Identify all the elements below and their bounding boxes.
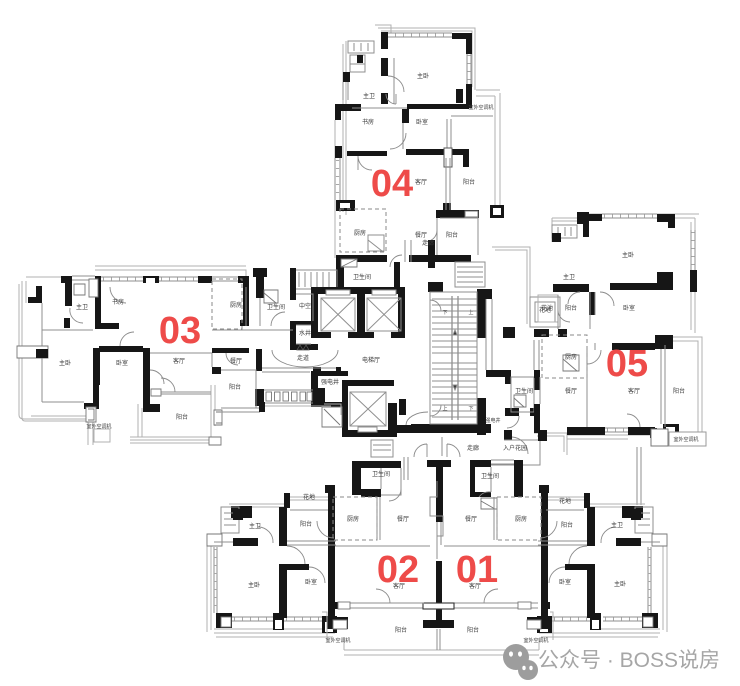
svg-text:卧室: 卧室 <box>559 578 571 586</box>
svg-text:卧室: 卧室 <box>416 118 428 126</box>
svg-text:公众号 · BOSS说房: 公众号 · BOSS说房 <box>538 649 720 672</box>
svg-text:客厅: 客厅 <box>415 178 427 186</box>
svg-text:阳台: 阳台 <box>463 178 475 186</box>
svg-text:阳台: 阳台 <box>561 521 573 529</box>
svg-text:阳台: 阳台 <box>395 626 407 634</box>
svg-text:餐厅: 餐厅 <box>230 357 242 365</box>
svg-text:卫生间: 卫生间 <box>481 472 499 480</box>
svg-text:阳台: 阳台 <box>467 626 479 634</box>
svg-text:走廊: 走廊 <box>467 444 479 452</box>
svg-text:03: 03 <box>159 310 201 352</box>
svg-text:阳台: 阳台 <box>673 387 685 395</box>
svg-text:客厅: 客厅 <box>628 387 640 395</box>
svg-text:卫生间: 卫生间 <box>515 387 533 395</box>
svg-text:下: 下 <box>442 310 447 316</box>
svg-text:厨房: 厨房 <box>230 301 242 309</box>
svg-text:强电井: 强电井 <box>321 378 339 386</box>
svg-text:阳台: 阳台 <box>300 520 312 528</box>
svg-text:走廊: 走廊 <box>422 239 434 247</box>
svg-text:书房: 书房 <box>362 118 374 126</box>
svg-text:花池: 花池 <box>541 304 553 312</box>
svg-text:厨房: 厨房 <box>354 229 366 237</box>
svg-text:中空: 中空 <box>299 302 311 310</box>
svg-text:卫生间: 卫生间 <box>353 273 371 281</box>
svg-text:室外空调机: 室外空调机 <box>673 436 698 443</box>
svg-text:电梯厅: 电梯厅 <box>362 356 380 364</box>
svg-text:书房: 书房 <box>112 298 124 306</box>
svg-text:卧室: 卧室 <box>623 304 635 312</box>
svg-text:05: 05 <box>606 343 648 385</box>
svg-text:餐厅: 餐厅 <box>397 515 409 523</box>
svg-text:卫生间: 卫生间 <box>372 470 390 478</box>
svg-text:卧室: 卧室 <box>116 359 128 367</box>
svg-text:阳台: 阳台 <box>565 304 577 312</box>
svg-text:花地: 花地 <box>303 493 315 501</box>
svg-text:02: 02 <box>377 549 419 591</box>
svg-text:卫生间: 卫生间 <box>267 303 285 311</box>
svg-text:主卫: 主卫 <box>76 303 88 311</box>
svg-text:室外空调机: 室外空调机 <box>86 423 111 430</box>
svg-text:强电井: 强电井 <box>485 417 500 424</box>
svg-text:走道: 走道 <box>297 354 309 362</box>
svg-text:主卫: 主卫 <box>249 522 261 530</box>
svg-text:入户花园: 入户花园 <box>503 444 527 452</box>
svg-text:主卧: 主卧 <box>622 251 634 259</box>
svg-text:阳台: 阳台 <box>176 413 188 421</box>
svg-text:阳台: 阳台 <box>229 383 241 391</box>
svg-text:厨房: 厨房 <box>565 353 577 361</box>
svg-text:主卧: 主卧 <box>417 72 429 80</box>
svg-text:01: 01 <box>456 549 498 591</box>
svg-text:主卫: 主卫 <box>363 92 375 100</box>
svg-text:室外空调机: 室外空调机 <box>523 637 548 644</box>
svg-text:主卫: 主卫 <box>563 273 575 281</box>
svg-text:餐厅: 餐厅 <box>415 231 427 239</box>
svg-text:花地: 花地 <box>559 497 571 505</box>
svg-text:室外空调机: 室外空调机 <box>325 637 350 644</box>
svg-text:下: 下 <box>468 406 473 412</box>
svg-text:上: 上 <box>442 405 447 412</box>
svg-text:主卧: 主卧 <box>614 580 626 588</box>
svg-text:上: 上 <box>468 309 473 316</box>
svg-text:04: 04 <box>371 163 413 205</box>
svg-text:主卧: 主卧 <box>59 359 71 367</box>
svg-text:厨房: 厨房 <box>347 515 359 523</box>
svg-text:客厅: 客厅 <box>173 357 185 365</box>
svg-text:卧室: 卧室 <box>305 578 317 586</box>
svg-text:主卫: 主卫 <box>611 521 623 529</box>
svg-text:主卧: 主卧 <box>248 581 260 589</box>
svg-text:厨房: 厨房 <box>515 515 527 523</box>
svg-text:餐厅: 餐厅 <box>565 387 577 395</box>
svg-text:阳台: 阳台 <box>446 231 458 239</box>
svg-text:室外空调机: 室外空调机 <box>468 104 493 111</box>
svg-text:水井: 水井 <box>299 329 311 337</box>
svg-text:餐厅: 餐厅 <box>465 515 477 523</box>
